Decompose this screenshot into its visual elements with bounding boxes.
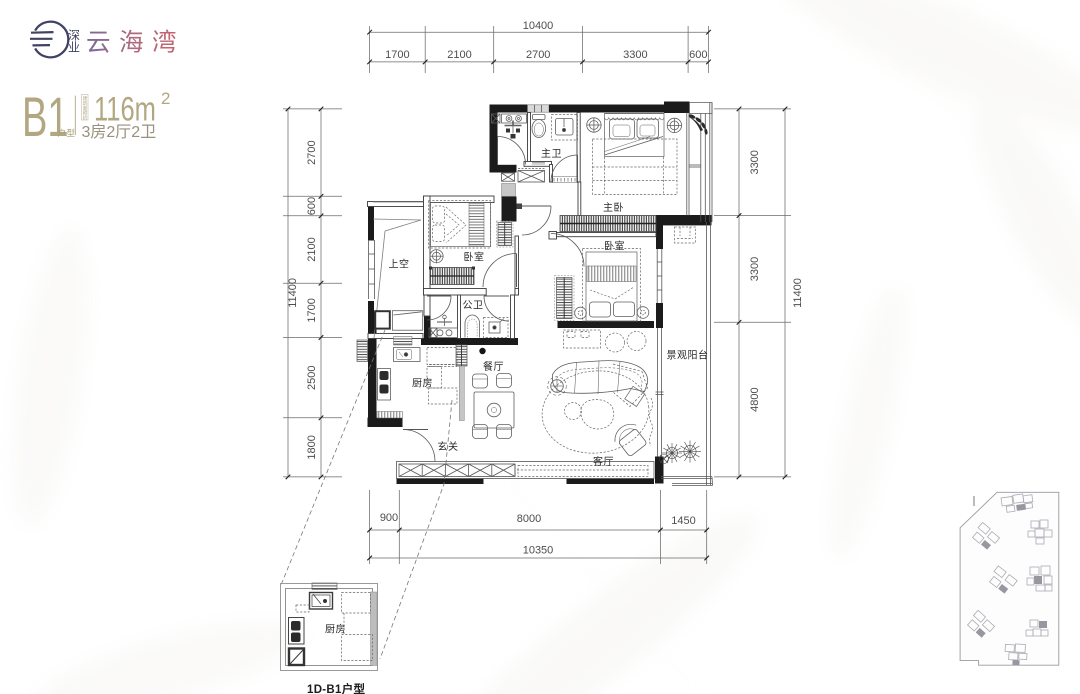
svg-text:2500: 2500 [306, 365, 318, 389]
svg-text:客厅: 客厅 [593, 455, 614, 468]
svg-text:1700: 1700 [306, 298, 318, 322]
svg-text:10400: 10400 [523, 20, 554, 32]
svg-text:约: 约 [83, 115, 88, 122]
svg-text:景观阳台: 景观阳台 [667, 349, 709, 362]
svg-text:4800: 4800 [749, 387, 761, 411]
svg-text:1450: 1450 [671, 515, 695, 527]
svg-text:3房2厅2卫: 3房2厅2卫 [82, 123, 157, 141]
svg-text:B1: B1 [22, 87, 69, 149]
svg-text:卧室: 卧室 [464, 251, 485, 264]
svg-text:1D-B1户型: 1D-B1户型 [307, 682, 366, 694]
svg-text:公卫: 公卫 [463, 301, 484, 312]
svg-text:厨房: 厨房 [412, 377, 433, 390]
svg-text:2700: 2700 [306, 140, 318, 164]
svg-text:3300: 3300 [623, 49, 647, 61]
svg-text:餐厅: 餐厅 [483, 360, 504, 373]
svg-text:600: 600 [306, 197, 318, 215]
svg-text:11400: 11400 [792, 278, 804, 308]
svg-text:116m: 116m [94, 91, 156, 128]
svg-text:上空: 上空 [389, 258, 410, 271]
svg-text:3300: 3300 [749, 150, 761, 174]
svg-text:云海湾: 云海湾 [86, 29, 185, 57]
svg-text:1800: 1800 [306, 435, 318, 459]
svg-text:厨房: 厨房 [325, 623, 346, 636]
svg-text:业: 业 [68, 41, 80, 55]
svg-text:户型: 户型 [58, 128, 76, 138]
svg-text:10350: 10350 [523, 545, 554, 557]
svg-text:主卧: 主卧 [603, 201, 624, 214]
svg-text:1700: 1700 [385, 49, 409, 61]
svg-text:卧室: 卧室 [604, 240, 625, 253]
svg-text:2700: 2700 [526, 49, 550, 61]
svg-text:8000: 8000 [517, 513, 541, 525]
svg-text:主卫: 主卫 [541, 148, 562, 160]
svg-text:2: 2 [161, 89, 170, 108]
svg-text:2100: 2100 [447, 49, 471, 61]
svg-text:900: 900 [380, 512, 398, 524]
svg-text:3300: 3300 [749, 257, 761, 281]
svg-text:玄关: 玄关 [438, 440, 459, 453]
svg-text:2100: 2100 [306, 237, 318, 261]
svg-text:11400: 11400 [287, 278, 299, 308]
svg-text:600: 600 [689, 49, 707, 61]
